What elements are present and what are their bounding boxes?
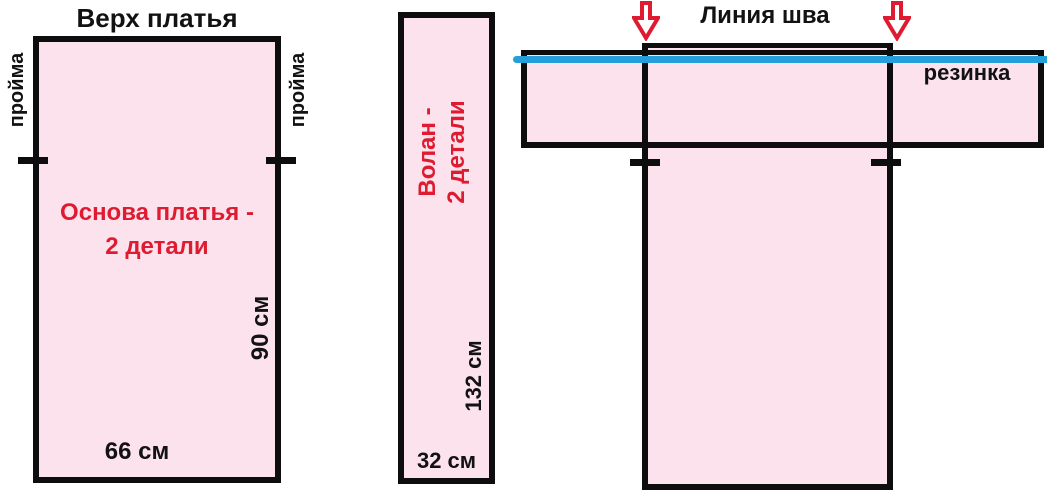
flounce-band-outline-top: [521, 50, 1044, 55]
piece-label-line1: Волан -: [413, 67, 442, 237]
flounce-band-outline-right: [1038, 50, 1044, 148]
piece-label: Основа платья - 2 детали: [33, 196, 281, 264]
notch-mark-right: [871, 159, 901, 166]
notch-mark-left: [18, 157, 48, 164]
red-down-arrow-icon: [632, 1, 660, 41]
height-dimension: 90 см: [249, 283, 273, 373]
width-dimension: 66 см: [77, 438, 197, 466]
piece-label-line2: 2 детали: [33, 230, 281, 264]
elastic-label: резинка: [902, 60, 1032, 86]
notch-mark-left: [630, 159, 660, 166]
seam-line-title: Линия шва: [660, 2, 870, 30]
piece-label-line2: 2 детали: [442, 67, 471, 237]
dress-body-outline-right: [887, 43, 893, 490]
piece-label: Волан - 2 детали: [413, 67, 473, 237]
flounce-band-outline-bottom: [521, 142, 1044, 148]
sewing-pattern-diagram: Верх платья пройма пройма Основа платья …: [0, 0, 1055, 502]
flounce-band-outline-left: [521, 50, 527, 148]
piece-label-line1: Основа платья -: [33, 196, 281, 230]
armhole-label-left: пройма: [4, 35, 30, 145]
armhole-label-right: пройма: [285, 35, 311, 145]
red-down-arrow-icon: [883, 1, 911, 41]
dress-body-outline-left: [642, 43, 648, 490]
width-dimension: 32 см: [398, 448, 495, 474]
dress-body-outline-bottom: [642, 484, 893, 490]
piece-title: Верх платья: [33, 3, 281, 34]
notch-mark-right: [266, 157, 296, 164]
seam-line: [642, 43, 893, 48]
height-dimension: 132 см: [462, 331, 486, 421]
